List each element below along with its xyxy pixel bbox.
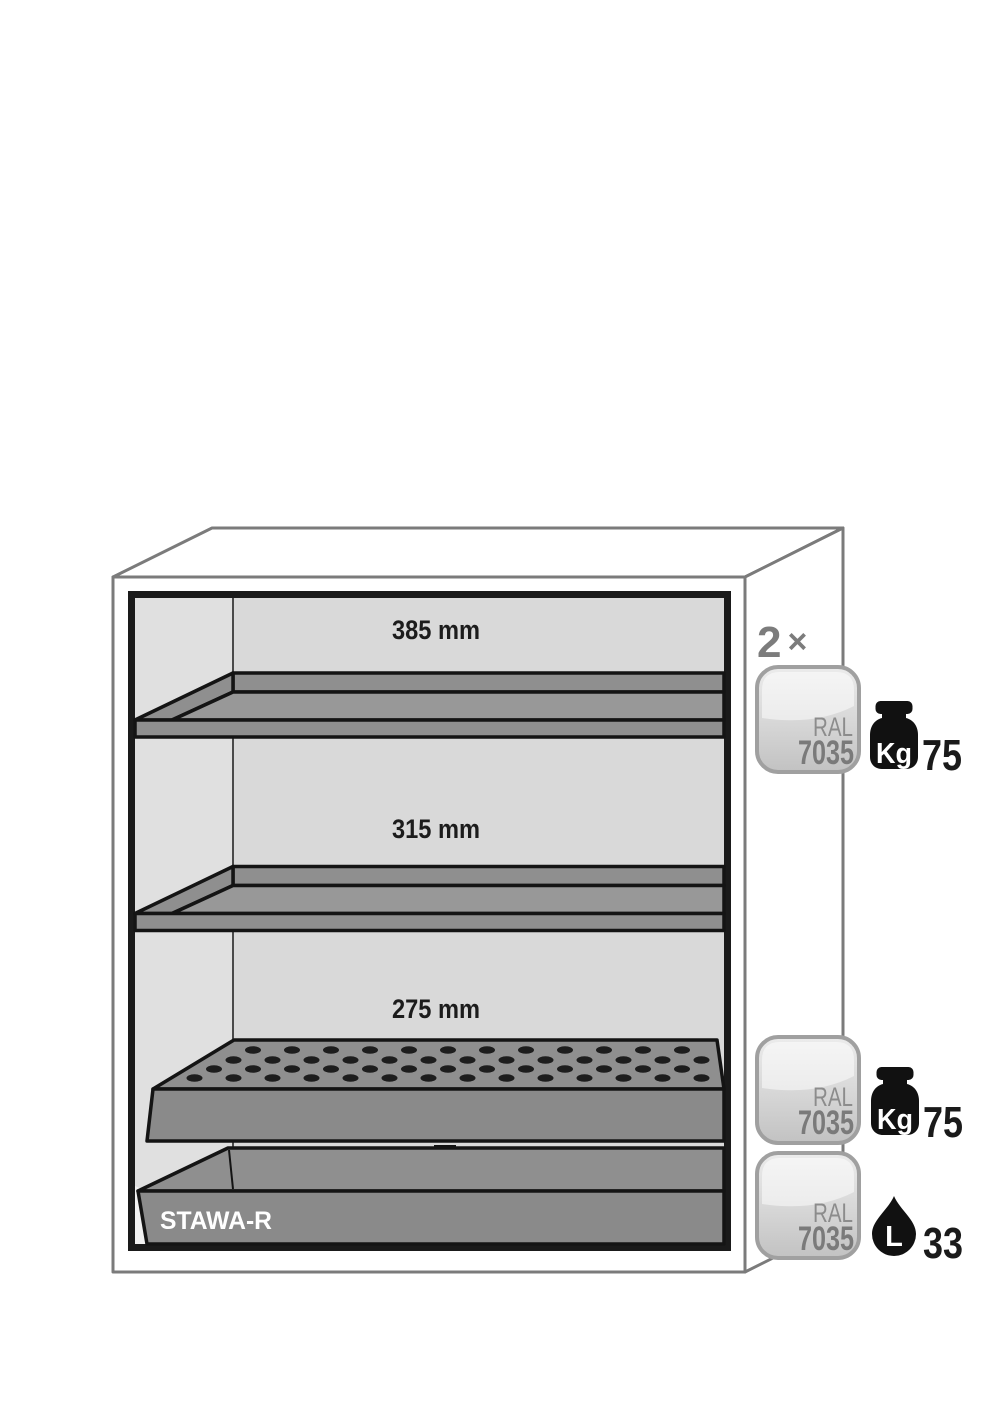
perforation-hole xyxy=(518,1046,534,1054)
perforation-hole xyxy=(577,1056,593,1064)
spec-badge-insert: RAL 7035 xyxy=(757,1037,859,1143)
perforation-hole xyxy=(187,1074,203,1082)
shelf-1 xyxy=(135,673,724,737)
perforation-hole xyxy=(440,1065,456,1073)
perforation-hole xyxy=(421,1074,437,1082)
shelf-2 xyxy=(135,867,724,931)
perforation-hole xyxy=(245,1046,261,1054)
perforated-insert-front xyxy=(147,1089,724,1141)
perforation-hole xyxy=(479,1046,495,1054)
perforation-hole xyxy=(226,1056,242,1064)
volume-unit-label: L xyxy=(885,1221,903,1253)
perforation-hole xyxy=(616,1074,632,1082)
weight-unit-label: Kg xyxy=(876,738,912,770)
perforation-hole xyxy=(401,1065,417,1073)
perforation-hole xyxy=(518,1065,534,1073)
times-symbol: × xyxy=(787,623,807,661)
weight-unit-label: Kg xyxy=(877,1104,913,1136)
perforation-hole xyxy=(284,1046,300,1054)
perforation-hole xyxy=(538,1074,554,1082)
sump-volume-value: 33 xyxy=(923,1219,963,1268)
perforation-hole xyxy=(479,1065,495,1073)
perforation-hole xyxy=(304,1074,320,1082)
perforation-hole xyxy=(499,1074,515,1082)
perforation-hole xyxy=(421,1056,437,1064)
shelf-load-value: 75 xyxy=(922,731,962,780)
perforation-hole xyxy=(557,1046,573,1054)
perforation-hole xyxy=(284,1065,300,1073)
perforation-hole xyxy=(596,1065,612,1073)
perforation-hole xyxy=(440,1046,456,1054)
sump-top xyxy=(138,1148,724,1191)
perforation-hole xyxy=(362,1065,378,1073)
perforation-hole xyxy=(343,1074,359,1082)
perforation-hole xyxy=(323,1065,339,1073)
perforation-hole xyxy=(655,1056,671,1064)
sump-label: STAWA-R xyxy=(160,1207,272,1235)
insert-load-value: 75 xyxy=(923,1098,963,1147)
perforation-hole xyxy=(499,1056,515,1064)
perforation-hole xyxy=(577,1074,593,1082)
perforation-hole xyxy=(596,1046,612,1054)
cabinet-top-face xyxy=(113,528,843,577)
cabinet-interior-diagram: 385 mm 315 mm 275 mm STAWA-R 2× RAL 7035… xyxy=(0,0,1003,1418)
perforation-hole xyxy=(460,1074,476,1082)
perforation-hole xyxy=(206,1065,222,1073)
perforation-hole xyxy=(674,1046,690,1054)
perforation-hole xyxy=(343,1056,359,1064)
perforation-hole xyxy=(265,1074,281,1082)
perforation-hole xyxy=(245,1065,261,1073)
perforation-hole xyxy=(694,1056,710,1064)
perforation-hole xyxy=(655,1074,671,1082)
perforation-hole xyxy=(226,1074,242,1082)
perforation-hole xyxy=(323,1046,339,1054)
ral-code: 7035 xyxy=(798,1104,854,1142)
perforation-hole xyxy=(304,1056,320,1064)
perforation-hole xyxy=(401,1046,417,1054)
perforation-hole xyxy=(616,1056,632,1064)
spec-badge-sump: RAL 7035 xyxy=(757,1153,859,1258)
perforation-hole xyxy=(362,1046,378,1054)
compartment-3-height-label: 275 mm xyxy=(392,994,480,1024)
perforation-hole xyxy=(265,1056,281,1064)
perforation-hole xyxy=(635,1046,651,1054)
perforation-hole xyxy=(674,1065,690,1073)
perforated-insert xyxy=(147,1040,724,1141)
ral-code: 7035 xyxy=(798,734,854,772)
compartment-2-height-label: 315 mm xyxy=(392,814,480,844)
product-diagram: 385 mm 315 mm 275 mm STAWA-R 2× RAL 7035… xyxy=(0,0,1003,1418)
ral-code: 7035 xyxy=(798,1220,854,1258)
perforation-hole xyxy=(694,1074,710,1082)
compartment-1-height-label: 385 mm xyxy=(392,615,480,645)
perforation-hole xyxy=(635,1065,651,1073)
perforation-hole xyxy=(460,1056,476,1064)
spec-badge-shelf: RAL 7035 xyxy=(757,667,859,772)
perforation-hole xyxy=(382,1074,398,1082)
perforation-hole xyxy=(538,1056,554,1064)
perforation-hole xyxy=(557,1065,573,1073)
perforation-hole xyxy=(382,1056,398,1064)
